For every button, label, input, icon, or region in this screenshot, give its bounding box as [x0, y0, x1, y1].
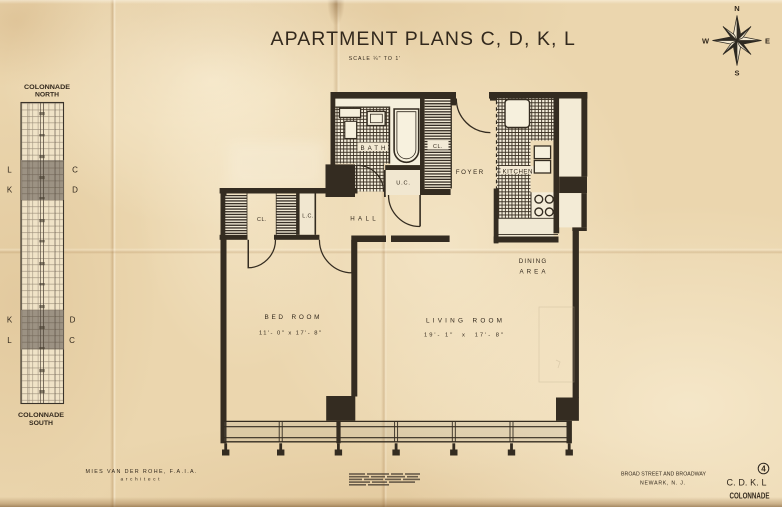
- svg-text:11'- 0" x 17'- 8": 11'- 0" x 17'- 8": [259, 331, 321, 337]
- svg-text:L.C.: L.C.: [302, 214, 314, 220]
- svg-text:CL.: CL.: [433, 144, 443, 150]
- svg-text:SOUTH: SOUTH: [29, 420, 53, 427]
- svg-text:HALL: HALL: [350, 215, 376, 222]
- svg-text:D: D: [70, 316, 76, 325]
- svg-text:S: S: [734, 69, 739, 78]
- svg-text:AREA: AREA: [520, 269, 547, 276]
- svg-text:architect: architect: [121, 477, 161, 483]
- svg-text:K: K: [7, 316, 13, 325]
- svg-text:BROAD STREET AND BROADWAY: BROAD STREET AND BROADWAY: [621, 472, 707, 478]
- svg-text:W: W: [702, 37, 710, 46]
- svg-text:BED ROOM: BED ROOM: [265, 314, 320, 321]
- svg-text:CL.: CL.: [257, 217, 267, 223]
- svg-text:COLONNADE: COLONNADE: [24, 84, 71, 91]
- svg-text:NORTH: NORTH: [35, 92, 59, 99]
- svg-text:COLONNADE: COLONNADE: [18, 412, 65, 419]
- svg-text:N: N: [734, 4, 739, 13]
- svg-text:C: C: [72, 166, 78, 175]
- svg-text:MIES VAN DER ROHE, F.A.I.A.: MIES VAN DER ROHE, F.A.I.A.: [86, 469, 197, 475]
- svg-text:C: C: [69, 336, 75, 345]
- svg-text:SCALE ¼" TO 1': SCALE ¼" TO 1': [349, 56, 401, 62]
- svg-text:L: L: [7, 336, 12, 345]
- svg-text:19'- 1" x 17'- 8": 19'- 1" x 17'- 8": [424, 333, 503, 339]
- svg-text:FOYER: FOYER: [456, 169, 484, 176]
- svg-text:NEWARK, N. J.: NEWARK, N. J.: [640, 481, 685, 487]
- svg-text:4: 4: [761, 465, 766, 474]
- svg-text:LIVING ROOM: LIVING ROOM: [426, 318, 502, 325]
- svg-text:U.C.: U.C.: [396, 180, 410, 186]
- svg-text:COLONNADE: COLONNADE: [730, 491, 770, 501]
- svg-text:DINING: DINING: [519, 258, 547, 265]
- svg-text:C. D. K. L: C. D. K. L: [727, 478, 767, 488]
- svg-text:E: E: [765, 37, 770, 46]
- svg-text:L: L: [7, 166, 12, 175]
- svg-text:KITCHEN: KITCHEN: [503, 168, 533, 175]
- svg-text:APARTMENT PLANS C, D, K, L: APARTMENT PLANS C, D, K, L: [271, 28, 578, 50]
- svg-text:K: K: [7, 186, 13, 195]
- svg-text:D: D: [72, 186, 78, 195]
